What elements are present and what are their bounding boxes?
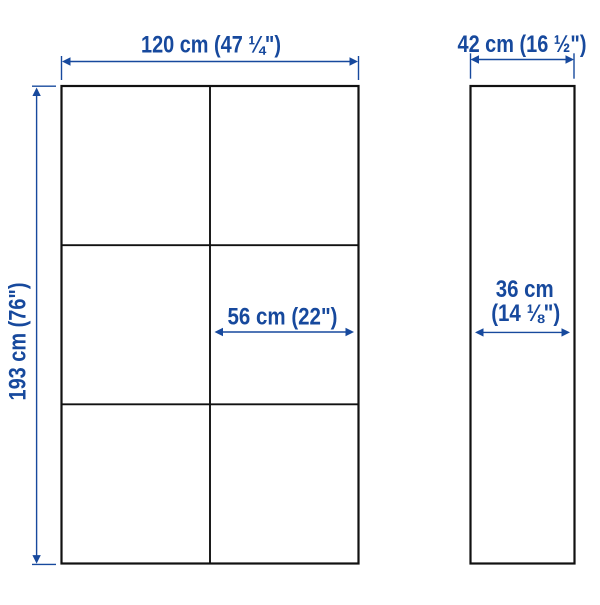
svg-text:56 cm (22"): 56 cm (22") bbox=[228, 303, 338, 330]
svg-text:42 cm (16 ½"): 42 cm (16 ½") bbox=[458, 31, 587, 58]
svg-text:120 cm (47 ¼"): 120 cm (47 ¼") bbox=[141, 32, 281, 59]
svg-text:193 cm (76"): 193 cm (76") bbox=[5, 283, 32, 401]
svg-text:(14 ⅛"): (14 ⅛") bbox=[491, 300, 560, 327]
